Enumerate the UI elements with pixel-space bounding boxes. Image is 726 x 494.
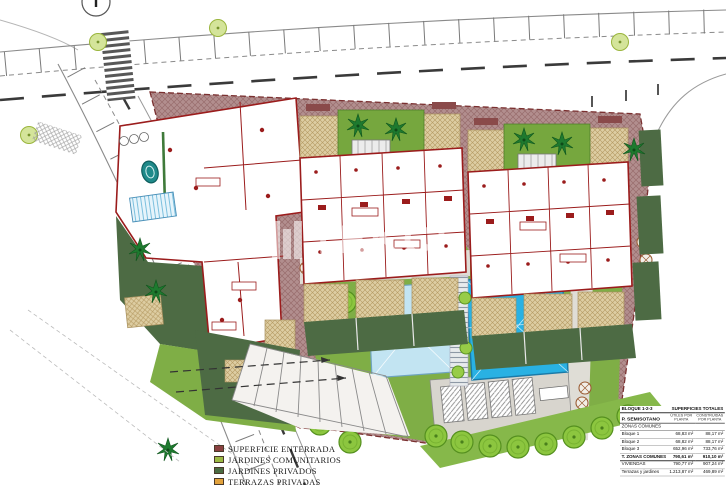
- row-util: 790,77 m²: [668, 461, 695, 469]
- legend-item: TERRAZAS PRIVADAS: [214, 476, 341, 487]
- row-label: Bloque 1: [620, 431, 668, 439]
- legend-swatch: [214, 467, 224, 474]
- block-label-chip: [474, 118, 498, 125]
- table-title-right: SUPERFICIES TOTALES: [668, 406, 725, 413]
- table-row: VIVIENDAS 790,77 m² 907,24 m²: [620, 461, 725, 469]
- row-built: 469,89 m²: [695, 468, 725, 476]
- street-tree-icon: [210, 20, 227, 37]
- row-built: 88,17 m²: [695, 438, 725, 446]
- legend-item: SUPERFICIE ENTERRADA: [214, 443, 341, 454]
- street-tree-icon: [90, 34, 107, 51]
- table-title-left: BLOQUE 1-2-3: [620, 406, 668, 413]
- row-label: VIVIENDAS: [620, 461, 668, 469]
- row-label: Bloque 2: [620, 438, 668, 446]
- table-row: Bloque 3 652,96 m² 733,76 m²: [620, 446, 725, 454]
- terrace-bottom: [304, 284, 348, 324]
- table-col-util: ÚTILES POR PLANTA: [668, 413, 695, 423]
- fixture-circle: [140, 133, 149, 142]
- legend-item: JARDINES PRIVADOS: [214, 465, 341, 476]
- bush-icon: [452, 366, 464, 378]
- crosswalk-hatch: [32, 121, 82, 154]
- legend-label: TERRAZAS PRIVADAS: [228, 477, 321, 487]
- area-summary-table: BLOQUE 1-2-3 SUPERFICIES TOTALES P. SEMI…: [620, 406, 726, 494]
- table-row: Bloque 1 68,83 m² 88,17 m²: [620, 431, 725, 439]
- table-row: Bloque 2 68,82 m² 88,17 m²: [620, 438, 725, 446]
- legend-swatch: [214, 456, 224, 463]
- site-plan-drawing: [0, 0, 726, 485]
- block1-outline: [300, 148, 466, 284]
- terrace-bottom: [472, 298, 516, 338]
- row-util: 1.213,87 m²: [668, 468, 695, 476]
- site-plan-page: { "watermark": { "text": "TEKCE" }, "leg…: [0, 0, 726, 485]
- table-section-label: ZONAS COMUNES: [620, 423, 725, 431]
- legend-label: JARDINES PRIVADOS: [228, 466, 317, 476]
- legend-swatch: [214, 445, 224, 452]
- row-label: T. ZONAS COMUNES: [620, 453, 668, 461]
- palm-tree-icon: [157, 438, 179, 461]
- legend: SUPERFICIE ENTERRADA JARDINES COMUNITARI…: [214, 443, 341, 487]
- row-built: 907,24 m²: [695, 461, 725, 469]
- block-label-chip: [432, 102, 456, 109]
- block-label-chip: [306, 104, 330, 111]
- fixture-circle: [120, 137, 129, 146]
- fixture-circle: [130, 135, 139, 144]
- terrace-top-left: [468, 130, 504, 172]
- bush-icon: [459, 292, 471, 304]
- row-built: 733,76 m²: [695, 446, 725, 454]
- legend-item: JARDINES COMUNITARIOS: [214, 454, 341, 465]
- terrace-top-left: [300, 116, 338, 158]
- table-col-built: CONSTRUIDAS POR PLANTA: [695, 413, 725, 423]
- legend-swatch: [214, 478, 224, 485]
- legend-label: SUPERFICIE ENTERRADA: [228, 444, 335, 454]
- table-total-row: T. ZONAS COMUNES 790,61 m² 910,10 m²: [620, 453, 725, 461]
- legend-label: JARDINES COMUNITARIOS: [228, 455, 341, 465]
- row-label: Terrazas y jardines: [620, 468, 668, 476]
- table-floor-label: P. SEMISOTANO: [620, 413, 668, 423]
- row-util: 652,96 m²: [668, 446, 695, 454]
- row-built: 910,10 m²: [695, 453, 725, 461]
- sign-box: [539, 386, 568, 401]
- building-block-1: [300, 102, 468, 356]
- road-edge-line: [0, 20, 78, 50]
- row-util: 790,61 m²: [668, 453, 695, 461]
- row-util: 68,82 m²: [668, 438, 695, 446]
- block-label-chip: [598, 116, 622, 123]
- table-row: Terrazas y jardines 1.213,87 m² 469,89 m…: [620, 468, 725, 476]
- terrace-patch: [125, 294, 164, 328]
- street-tree-icon: [612, 34, 629, 51]
- row-util: 68,83 m²: [668, 431, 695, 439]
- row-built: 88,17 m²: [695, 431, 725, 439]
- row-label: Bloque 3: [620, 446, 668, 454]
